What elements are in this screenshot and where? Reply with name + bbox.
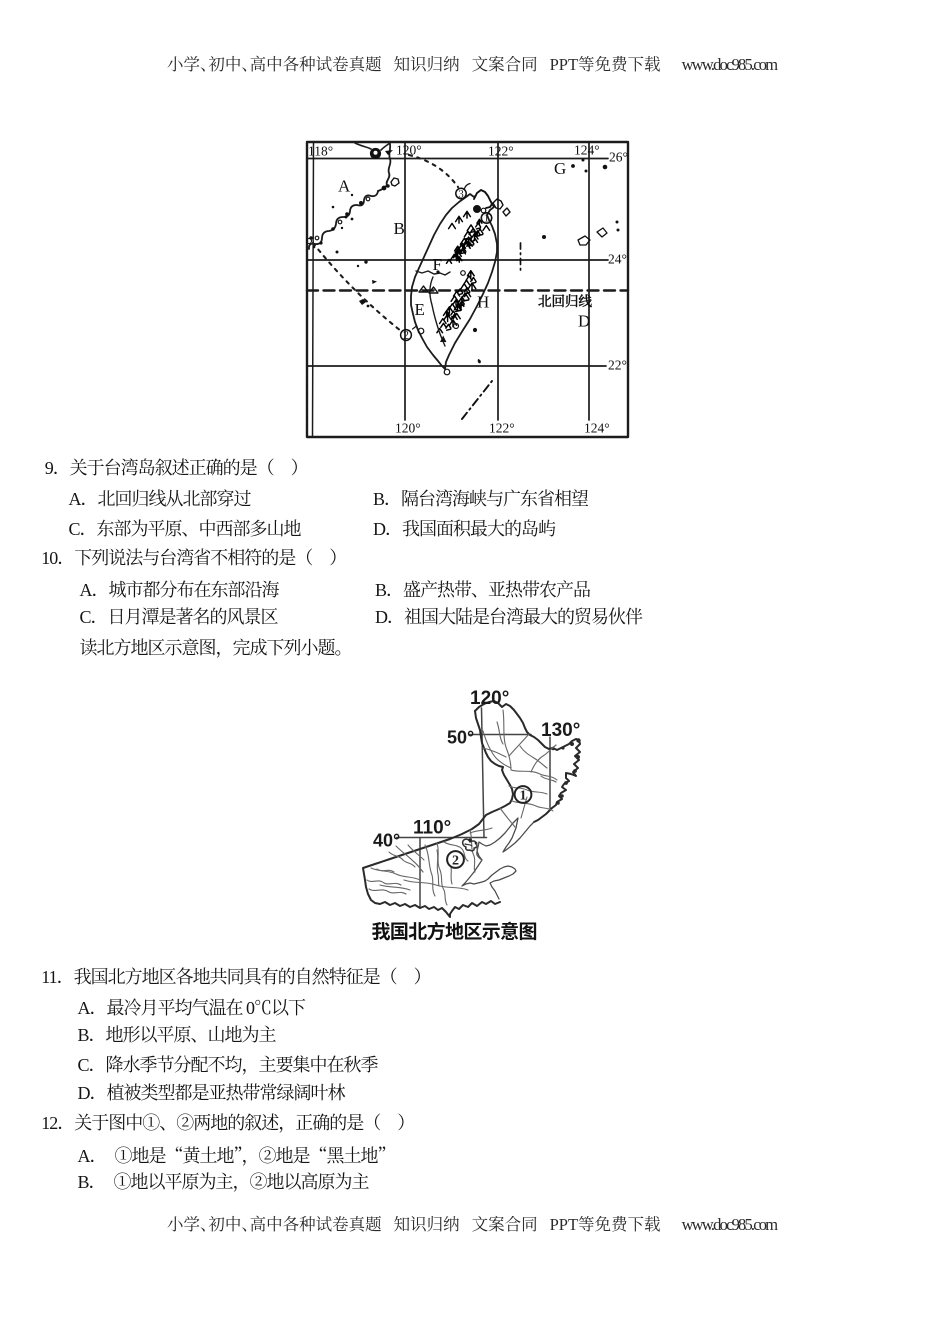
svg-text:2: 2	[403, 327, 409, 343]
svg-text:26°: 26°	[609, 150, 628, 165]
svg-text:50°: 50°	[447, 728, 474, 748]
svg-text:1: 1	[520, 789, 527, 804]
svg-text:122°: 122°	[489, 421, 515, 436]
svg-text:22°: 22°	[608, 358, 627, 373]
svg-text:110°: 110°	[413, 818, 451, 839]
svg-text:1: 1	[484, 210, 490, 225]
svg-text:120°: 120°	[395, 421, 421, 436]
svg-text:北回归线: 北回归线	[538, 290, 592, 310]
svg-text:A: A	[338, 176, 351, 195]
svg-text:118°: 118°	[308, 144, 333, 159]
svg-text:E: E	[415, 300, 425, 319]
svg-text:G: G	[554, 159, 566, 178]
svg-text:120°: 120°	[470, 688, 509, 709]
svg-text:24°: 24°	[608, 252, 627, 267]
svg-text:2: 2	[452, 854, 459, 869]
svg-text:H: H	[477, 292, 489, 311]
svg-text:3: 3	[458, 187, 464, 202]
svg-text:40°: 40°	[373, 831, 400, 851]
svg-text:D: D	[578, 311, 590, 330]
svg-text:130°: 130°	[541, 720, 580, 741]
svg-text:124°: 124°	[574, 143, 600, 158]
svg-text:B: B	[394, 219, 405, 238]
svg-text:120°: 120°	[396, 143, 422, 158]
svg-text:122°: 122°	[488, 144, 514, 159]
svg-text:124°: 124°	[584, 421, 610, 436]
svg-text:F: F	[433, 255, 442, 274]
